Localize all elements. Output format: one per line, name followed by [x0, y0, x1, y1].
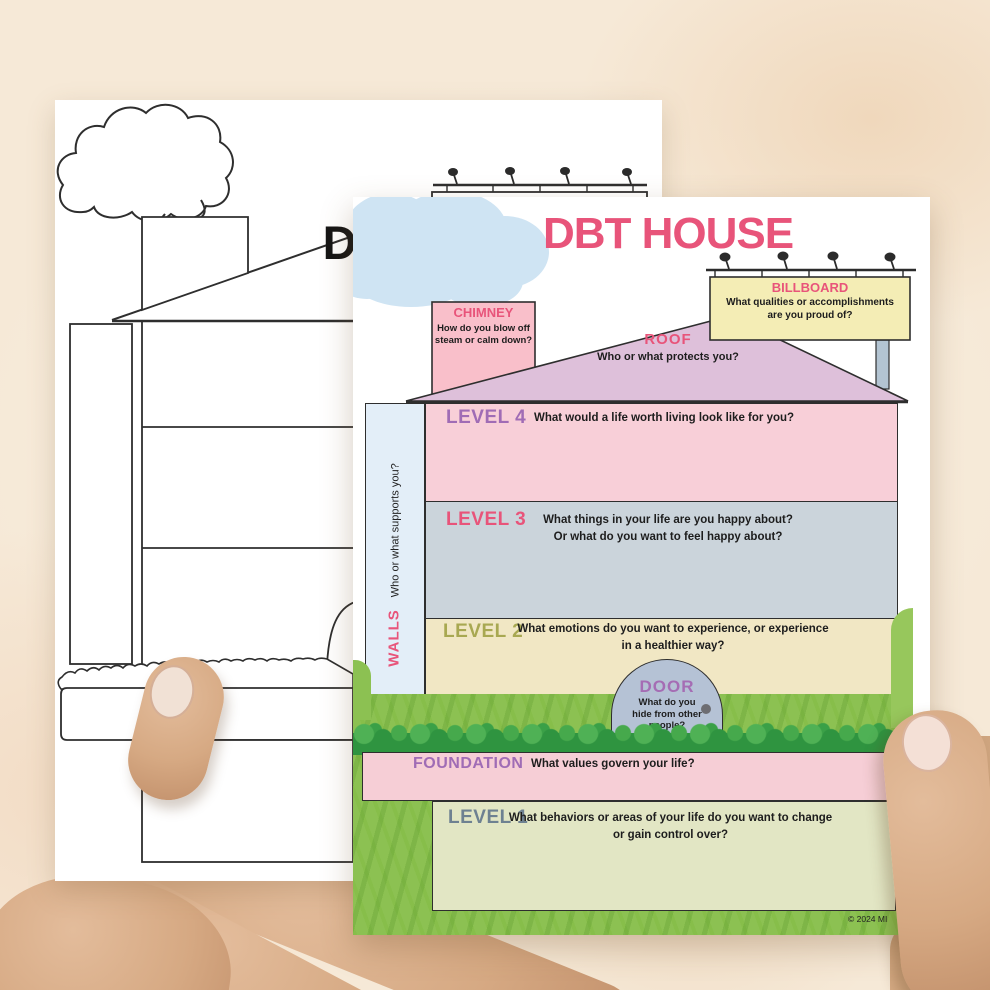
- grass-mound-left: [353, 660, 371, 720]
- walls-vertical-text: WALLSWho or what supports you?: [386, 463, 404, 666]
- billboard-lamp-icon: [448, 167, 632, 176]
- foundation-label: FOUNDATION: [413, 755, 523, 773]
- copyright-text: © 2024 MI: [848, 914, 887, 924]
- roof-question: Who or what protects you?: [548, 351, 788, 363]
- walls-question: Who or what supports you?: [390, 463, 402, 597]
- bush-hedge-row: [353, 721, 913, 755]
- level3-question-line: What things in your life are you happy a…: [503, 512, 833, 529]
- level4-question: What would a life worth living look like…: [534, 412, 794, 424]
- level3-question-line: Or what do you want to feel happy about?: [503, 529, 833, 546]
- billboard-leg: [876, 340, 889, 389]
- foundation-question: What values govern your life?: [531, 758, 695, 770]
- level2-question-line: in a healthier way?: [503, 638, 843, 655]
- front-worksheet-page: DBT HOUSE WALLSWho or what supports you?…: [353, 197, 930, 935]
- smoke-cloud-outline: [58, 105, 233, 222]
- billboard-label: BILLBOARD: [710, 280, 910, 295]
- level1-question-line: or gain control over?: [493, 827, 848, 844]
- front-page-title: DBT HOUSE: [468, 209, 868, 259]
- door-knob-icon: [701, 704, 711, 714]
- chimney-outline: [142, 217, 248, 310]
- grass-mound-right: [891, 608, 913, 728]
- chimney-question-line: How do you blow off: [426, 323, 541, 335]
- level2-question-line: What emotions do you want to experience,…: [503, 621, 843, 638]
- level4-label: LEVEL 4: [446, 407, 526, 429]
- chimney-label: CHIMNEY: [432, 305, 535, 320]
- billboard-question-line: are you proud of?: [705, 310, 915, 323]
- chimney-question-line: steam or calm down?: [426, 335, 541, 347]
- walls-label: WALLS: [386, 609, 403, 667]
- door-label: DOOR: [612, 677, 722, 697]
- roof-label: ROOF: [568, 331, 768, 348]
- walls-column: WALLSWho or what supports you?: [365, 403, 425, 727]
- level1-question-line: What behaviors or areas of your life do …: [493, 810, 848, 827]
- door-arc-outline: [327, 602, 355, 665]
- walls-strip-outline: [70, 324, 132, 664]
- billboard-question-line: What qualities or accomplishments: [705, 297, 915, 310]
- photo-scene: DBT HOUSE: [0, 0, 990, 990]
